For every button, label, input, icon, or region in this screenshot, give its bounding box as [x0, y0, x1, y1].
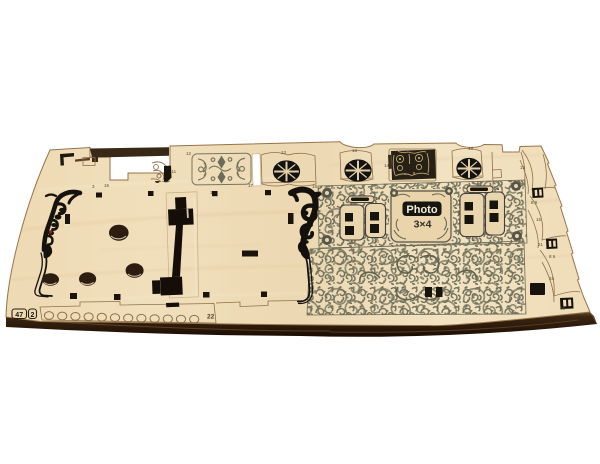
svg-text:3×4: 3×4 — [414, 219, 432, 231]
svg-text:15: 15 — [549, 276, 555, 281]
svg-text:15: 15 — [536, 217, 542, 222]
svg-text:19: 19 — [375, 196, 381, 201]
svg-text:15: 15 — [560, 306, 566, 311]
svg-text:13: 13 — [281, 150, 287, 155]
svg-text:47: 47 — [15, 312, 23, 319]
svg-text:21: 21 — [538, 242, 544, 247]
svg-text:20: 20 — [348, 240, 354, 245]
svg-text:22: 22 — [207, 314, 215, 321]
svg-text:8 6: 8 6 — [531, 200, 538, 205]
svg-text:13: 13 — [468, 146, 474, 151]
svg-text:20: 20 — [374, 239, 380, 244]
svg-text:17: 17 — [248, 183, 254, 188]
svg-text:16: 16 — [104, 183, 110, 188]
svg-text:14: 14 — [384, 163, 390, 168]
svg-text:19: 19 — [494, 186, 500, 191]
svg-text:20: 20 — [472, 237, 478, 242]
svg-text:8 6: 8 6 — [549, 254, 556, 259]
svg-text:11: 11 — [172, 169, 177, 174]
svg-text:20: 20 — [498, 236, 504, 241]
svg-text:2: 2 — [31, 312, 35, 319]
svg-text:13: 13 — [352, 148, 358, 153]
svg-text:15: 15 — [520, 165, 526, 170]
svg-text:18: 18 — [312, 184, 318, 189]
svg-text:12: 12 — [186, 151, 192, 156]
svg-text:Photo: Photo — [406, 204, 437, 216]
